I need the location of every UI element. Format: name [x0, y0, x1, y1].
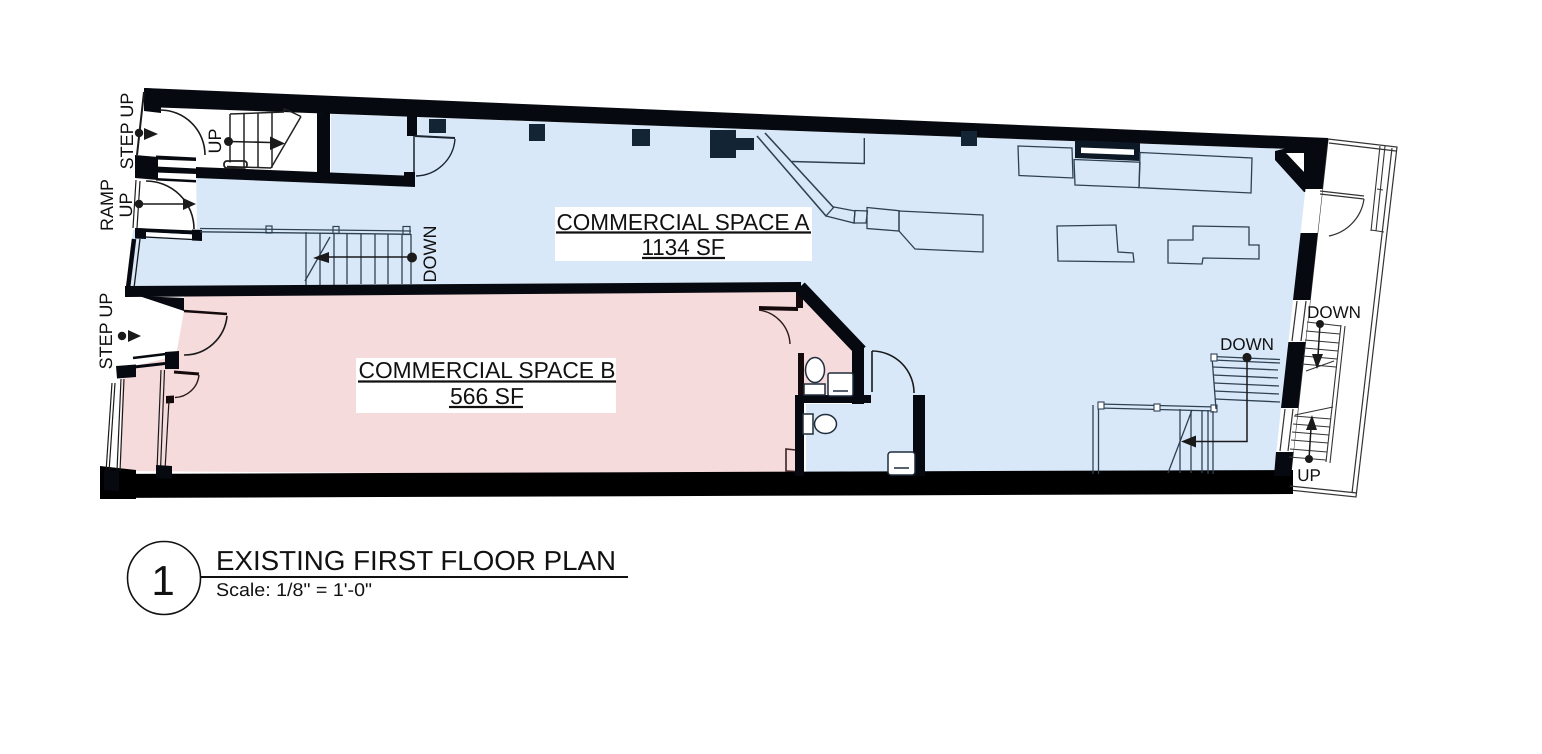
svg-text:STEP UP: STEP UP — [96, 293, 116, 370]
svg-text:Scale: 1/8" = 1'-0": Scale: 1/8" = 1'-0" — [216, 579, 372, 600]
svg-text:RAMP: RAMP — [97, 179, 117, 231]
svg-text:COMMERCIAL SPACE B: COMMERCIAL SPACE B — [359, 357, 616, 383]
svg-text:DOWN: DOWN — [1307, 303, 1361, 322]
svg-text:566 SF: 566 SF — [450, 383, 524, 409]
svg-text:EXISTING FIRST FLOOR PLAN: EXISTING FIRST FLOOR PLAN — [216, 545, 616, 576]
svg-text:UP: UP — [205, 128, 225, 153]
svg-text:DOWN: DOWN — [420, 226, 440, 283]
svg-text:1134 SF: 1134 SF — [642, 234, 725, 260]
svg-text:UP: UP — [116, 192, 136, 217]
svg-text:COMMERCIAL SPACE A: COMMERCIAL SPACE A — [557, 209, 811, 235]
svg-text:UP: UP — [1297, 466, 1321, 485]
svg-text:DOWN: DOWN — [1220, 335, 1274, 354]
svg-text:1: 1 — [151, 557, 174, 604]
svg-text:STEP UP: STEP UP — [117, 93, 137, 170]
